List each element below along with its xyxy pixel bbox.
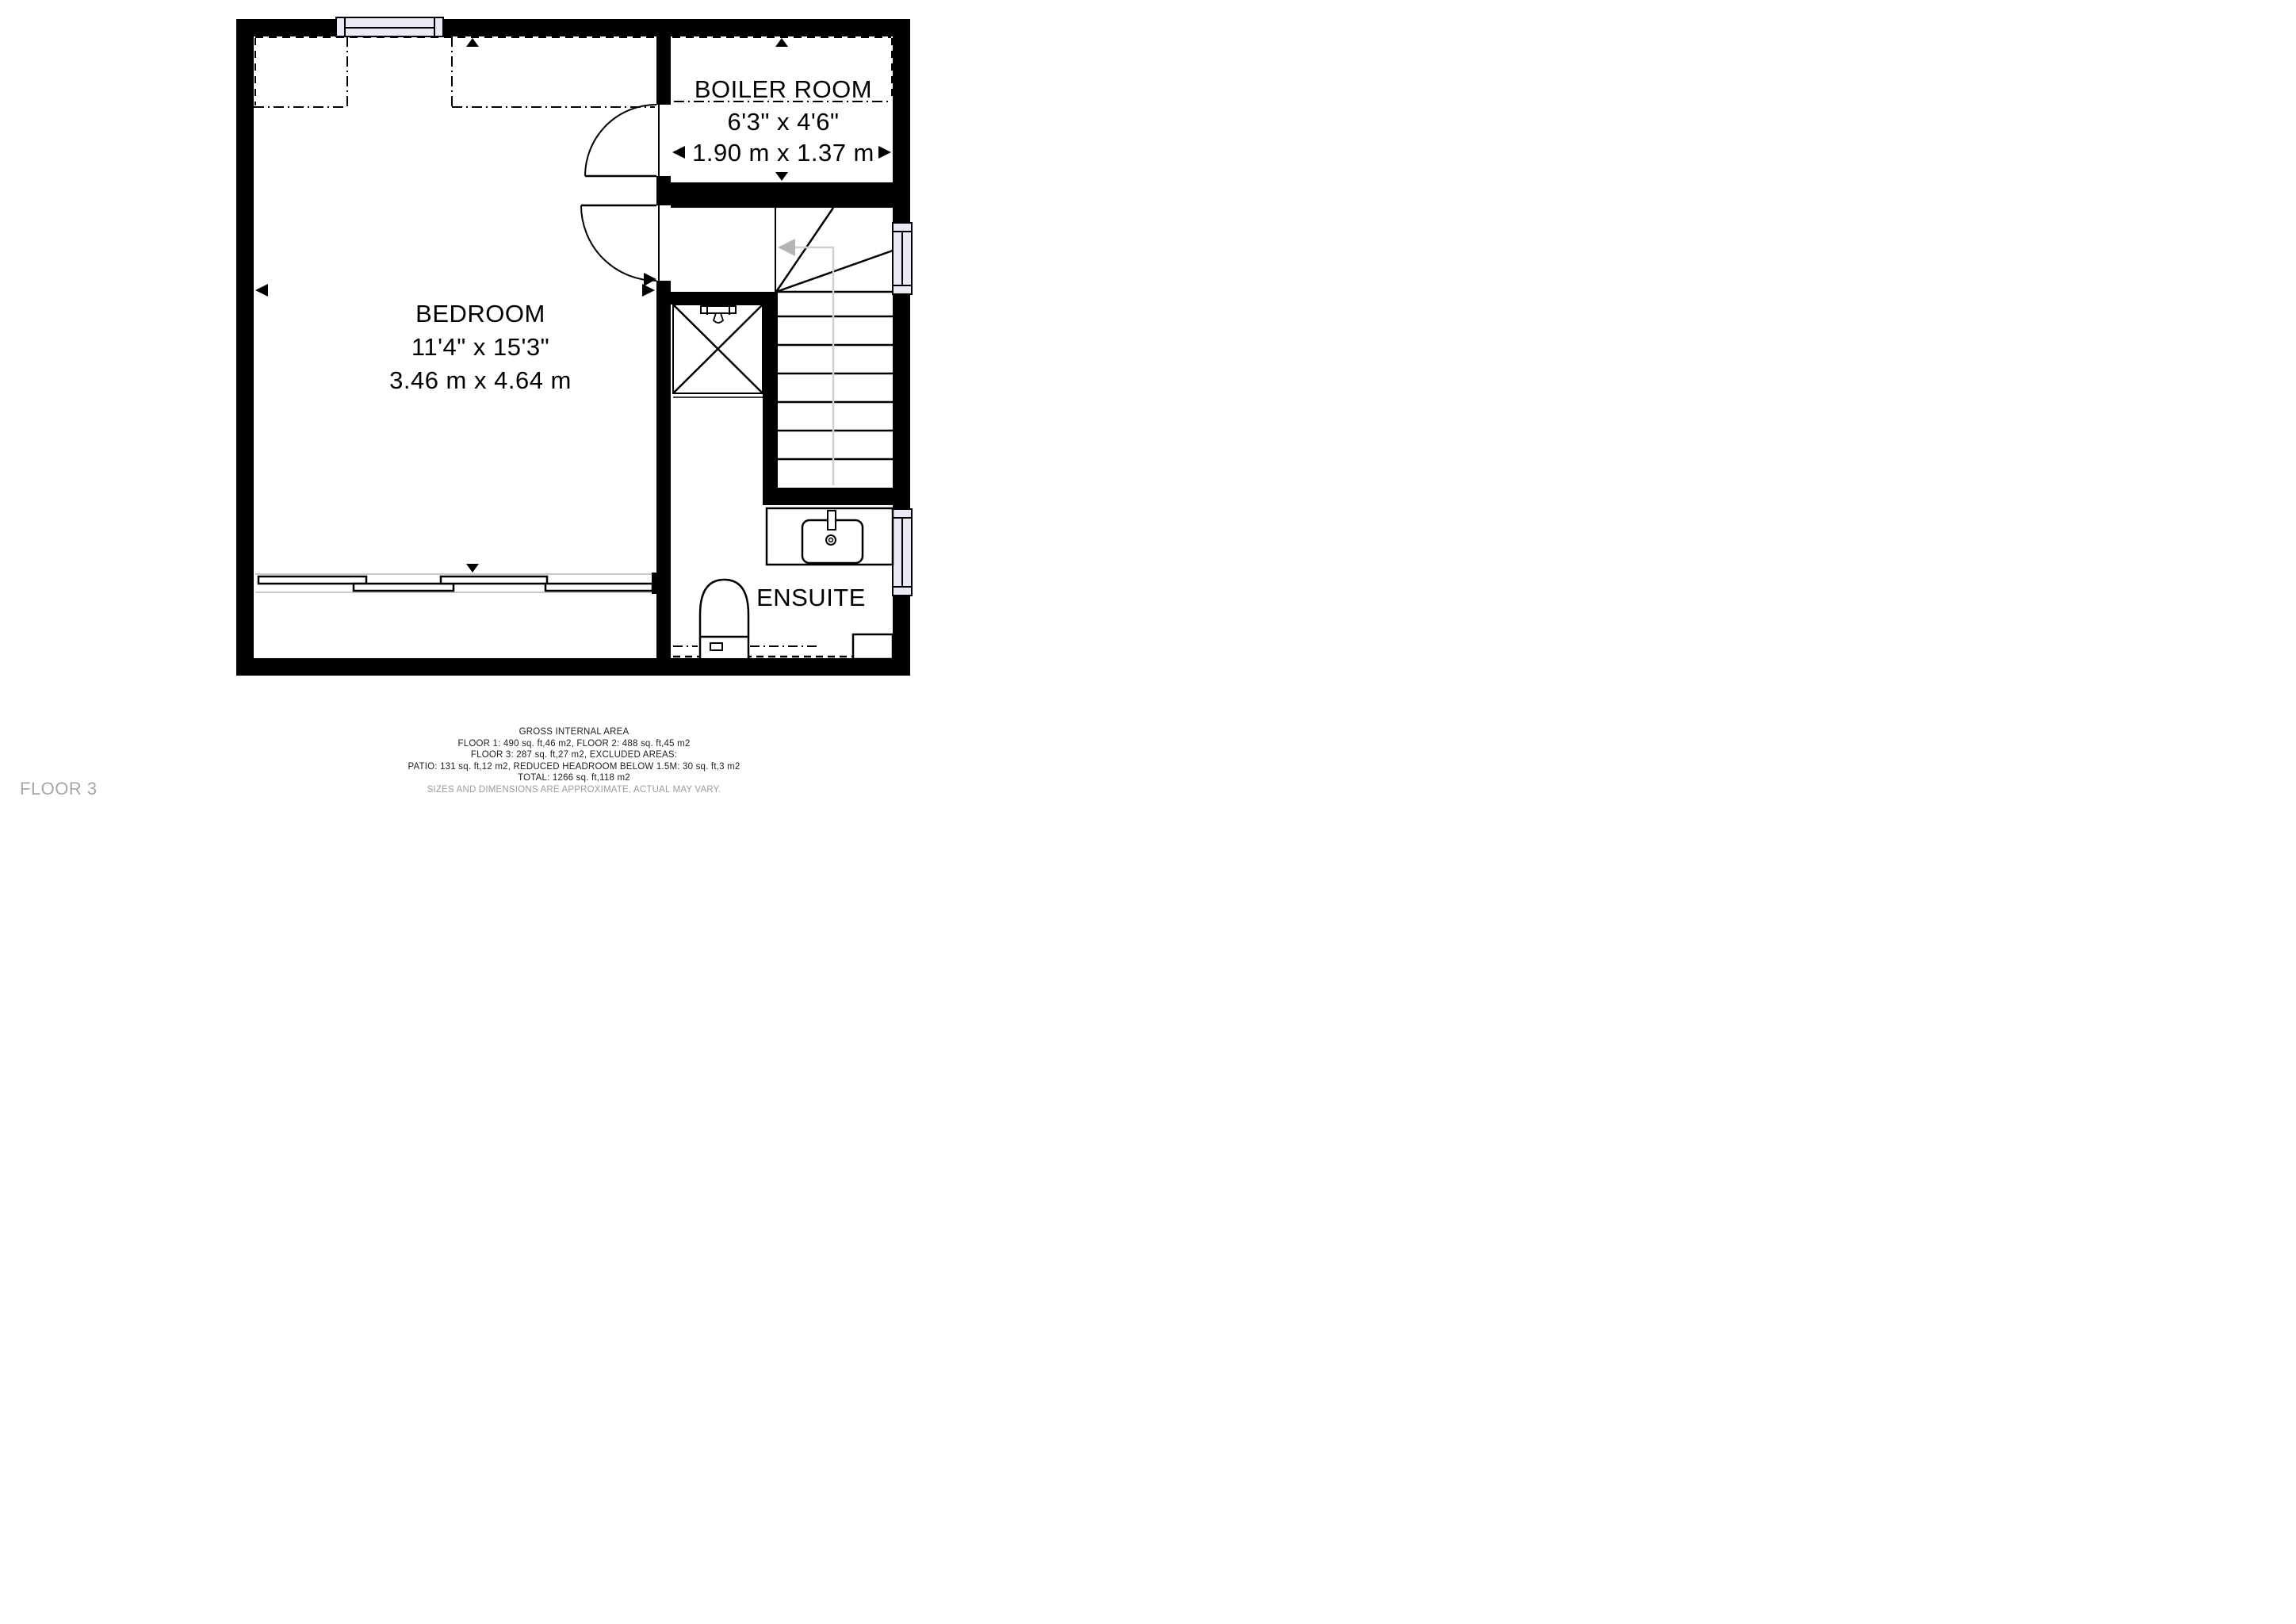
wall-bedroom-right-b [656,176,671,205]
boiler-dim-arrow-left [672,146,685,159]
footer-disclaimer: SIZES AND DIMENSIONS ARE APPROXIMATE, AC… [427,785,721,795]
wall-left [236,19,254,676]
door-boiler-icon [585,105,659,176]
wall-bedroom-right-c [656,281,671,658]
footer-floor-3: FLOOR 3: 287 sq. ft,27 m2, EXCLUDED AREA… [471,750,677,760]
boiler-dim-arrow-right [878,146,891,159]
wall-bottom [236,658,910,676]
boiler-room-dim-imperial: 6'3" x 4'6" [727,108,839,136]
ensuite-corner-unit [853,634,893,659]
bedroom-dim-arrow-down [466,564,479,573]
wall-bedroom-right-a [656,36,671,105]
bedroom-dim-imperial: 11'4" x 15'3" [411,333,549,361]
sliding-panel-4 [545,584,652,591]
boiler-dim-arrow-up [775,38,788,47]
doors [581,105,659,286]
wall-landing-bottom [671,292,769,304]
sliding-panel-3 [441,576,547,584]
door-swing-arrow [644,273,656,286]
glazing-wall-nub [652,573,656,594]
footer-title: GROSS INTERNAL AREA [519,727,629,737]
bedroom-dim-arrow-up [466,38,479,47]
sliding-panel-1 [258,576,366,584]
wall-shower-stairs [763,292,778,505]
sliding-panel-2 [354,584,453,591]
toilet-icon [700,580,748,658]
shower [673,304,763,397]
window-ensuite-icon [893,509,912,596]
window-top-icon [336,17,443,36]
window-stairs-icon [893,223,912,294]
staircase [775,208,893,485]
wall-staircore-bottom [763,488,893,505]
boiler-dim-arrow-down [775,172,788,181]
footer-floors-1-2: FLOOR 1: 490 sq. ft,46 m2, FLOOR 2: 488 … [458,739,691,749]
boiler-room-dim-metric: 1.90 m x 1.37 m [692,139,874,167]
boiler-room-label: BOILER ROOM [695,75,872,103]
footer-excluded: PATIO: 131 sq. ft,12 m2, REDUCED HEADROO… [408,762,740,772]
bedroom-dim-arrow-left [255,284,268,297]
stair-direction-arrow [778,239,795,256]
patio-sliding-doors [255,573,656,594]
bedroom-dim-metric: 3.46 m x 4.64 m [389,366,572,394]
footer-summary: GROSS INTERNAL AREA FLOOR 1: 490 sq. ft,… [408,727,740,795]
straight-treads [778,316,893,459]
footer-total: TOTAL: 1266 sq. ft,118 m2 [518,773,630,783]
door-landing-icon [581,205,659,286]
wall-boiler-bottom [671,182,893,208]
floorplan-page: BEDROOM 11'4" x 15'3" 3.46 m x 4.64 m BO… [0,0,1148,812]
vanity-sink-icon [767,508,893,565]
bedroom-dim-arrow-right [642,284,655,297]
bedroom-label: BEDROOM [415,300,545,327]
ensuite-label: ENSUITE [756,584,866,611]
floorplan-drawing: BEDROOM 11'4" x 15'3" 3.46 m x 4.64 m BO… [0,0,1148,812]
floor-label: FLOOR 3 [20,779,98,799]
